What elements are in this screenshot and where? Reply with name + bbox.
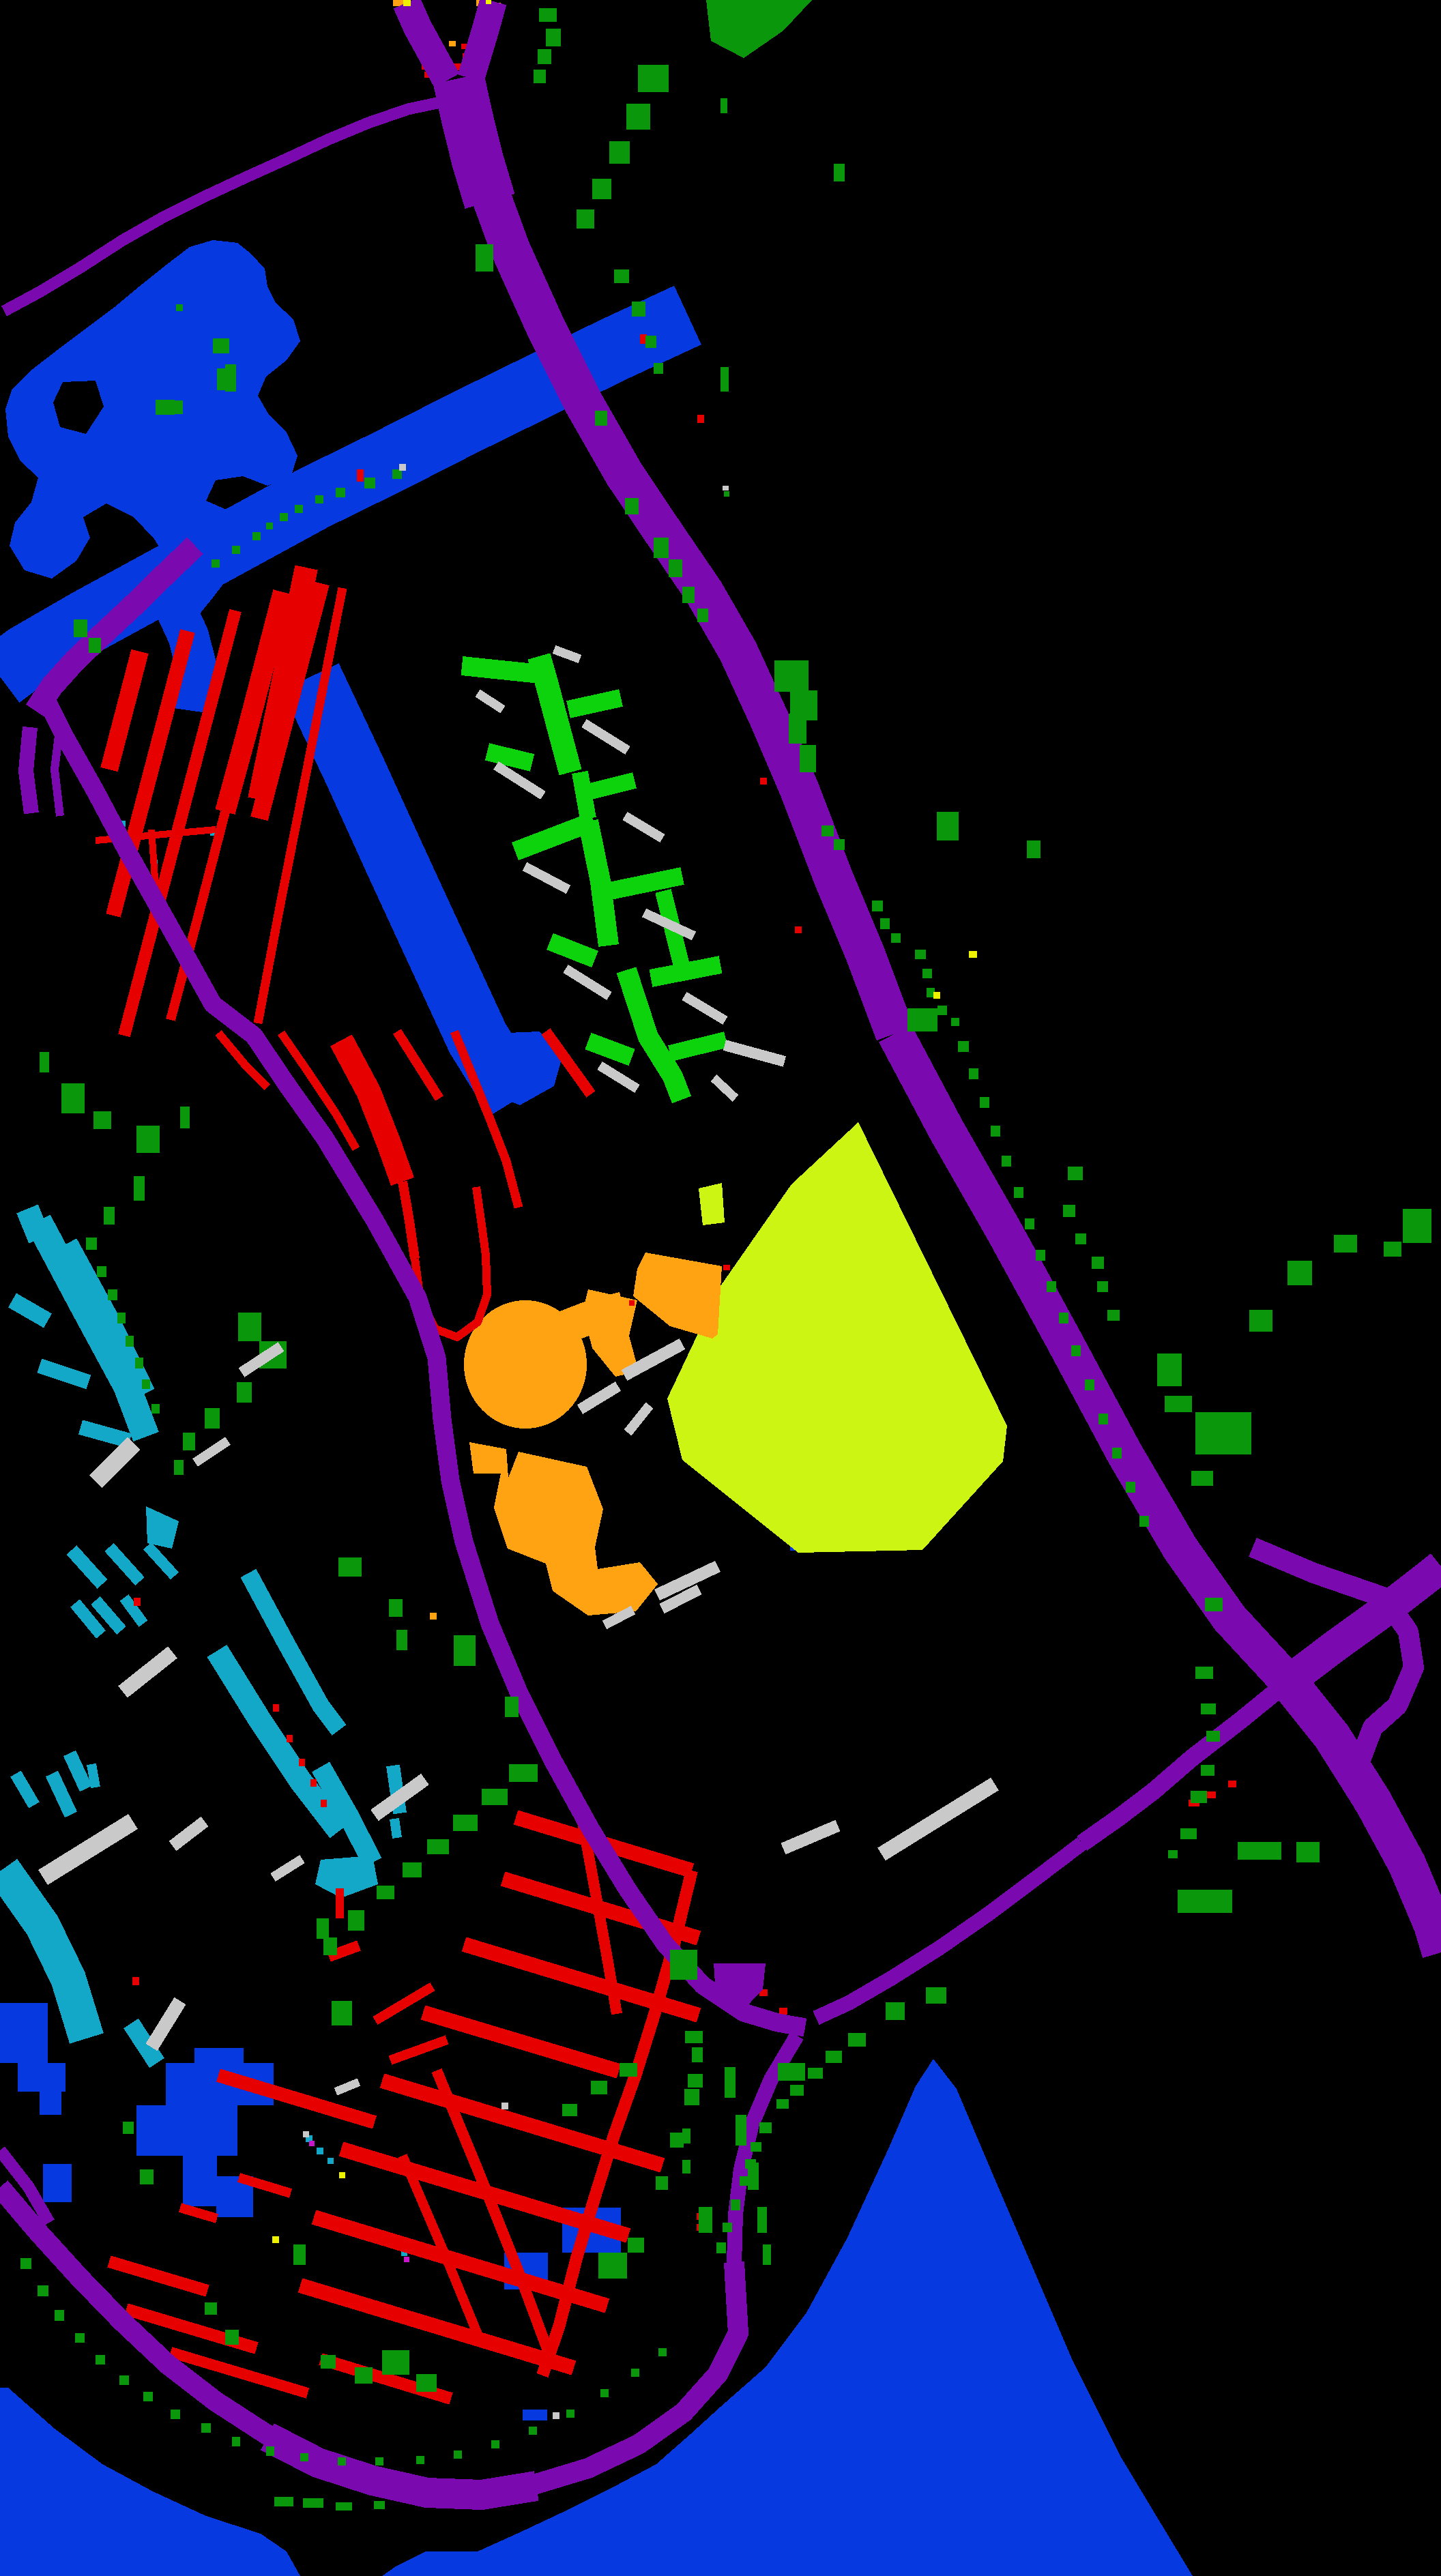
blue-blobs-bottom: [43, 2164, 72, 2202]
trees-dots: [682, 587, 695, 603]
trees-dots: [135, 1358, 143, 1368]
trees-dots: [592, 179, 611, 199]
trees-dots: [332, 2001, 352, 2025]
red-specks: [760, 778, 767, 785]
road-strip: [26, 727, 31, 813]
trees-dots: [682, 2160, 690, 2173]
trees-dots: [205, 2302, 217, 2315]
trees-dots: [1201, 1703, 1216, 1714]
trees-dots: [180, 1107, 190, 1128]
trees-dots: [751, 2142, 761, 2152]
blue-blobs-bottom: [183, 2156, 217, 2206]
trees-dots: [891, 933, 901, 943]
trees-dots: [670, 2133, 684, 2148]
trees-dots: [171, 2410, 180, 2419]
trees-dots: [1403, 1209, 1431, 1243]
trees-dots: [872, 901, 883, 911]
trees-dots: [315, 495, 323, 503]
trees-dots: [338, 2457, 346, 2465]
trees-dots: [614, 269, 629, 283]
red-specks: [310, 1779, 317, 1787]
trees-dots: [1002, 1156, 1011, 1167]
trees-dots: [654, 538, 669, 558]
trees-dots: [907, 1008, 937, 1031]
trees-dots: [778, 2063, 805, 2081]
red-specks: [273, 1704, 279, 1712]
trees-dots: [628, 2238, 644, 2253]
trees-dots: [1165, 1396, 1192, 1412]
trees-dots: [834, 164, 845, 181]
orange-dots: [449, 41, 456, 46]
blue-blobs-bottom: [18, 2063, 65, 2092]
cyan-specks: [327, 2158, 334, 2164]
trees-dots: [937, 812, 959, 840]
trees-dots: [566, 2410, 574, 2418]
trees-dots: [1059, 1313, 1068, 1323]
trees-dots: [392, 469, 402, 479]
trees-dots: [1195, 1667, 1213, 1679]
trees-dots: [1126, 1482, 1135, 1493]
trees-dots: [293, 2244, 306, 2265]
trees-dots: [609, 141, 630, 164]
trees-dots: [274, 2497, 293, 2506]
trees-dots: [75, 2333, 85, 2343]
cyan-specks: [317, 2148, 323, 2154]
trees-dots: [1384, 1242, 1401, 1257]
trees-dots: [505, 1697, 519, 1717]
trees-dots: [1201, 1765, 1214, 1776]
trees-dots: [670, 1950, 697, 1980]
trees-dots: [790, 2085, 804, 2096]
trees-dots: [669, 559, 682, 577]
trees-dots: [97, 1266, 106, 1277]
trees-dots: [336, 488, 345, 497]
trees-dots: [143, 2392, 153, 2401]
trees-dots: [529, 2427, 537, 2435]
trees-dots: [1180, 1828, 1197, 1839]
trees-dots: [685, 2031, 703, 2043]
trees-dots: [656, 2176, 668, 2190]
trees-dots: [1085, 1379, 1094, 1390]
trees-dots: [625, 498, 639, 514]
cyan-bar: [91, 1764, 96, 1787]
trees-dots: [591, 2081, 607, 2094]
trees-dots: [1075, 1233, 1086, 1244]
trees-dots: [562, 2104, 577, 2116]
trees-dots: [416, 2456, 424, 2464]
trees-dots: [620, 2063, 637, 2077]
trees-dots: [1191, 1791, 1207, 1803]
trees-dots: [317, 1918, 329, 1939]
yellow-specks: [272, 2236, 279, 2243]
trees-dots: [688, 2074, 703, 2088]
classification-map-page: [0, 0, 1441, 2576]
red-specks: [795, 926, 802, 933]
trees-dots: [1025, 1218, 1034, 1229]
trees-dots: [136, 1126, 160, 1153]
trees-dots: [96, 2355, 105, 2365]
trees-dots: [176, 304, 183, 311]
comb-branch: [487, 752, 532, 763]
trees-dots: [266, 2446, 274, 2456]
trees-dots: [980, 1097, 989, 1108]
trees-dots: [238, 1313, 261, 1341]
trees-dots: [201, 2423, 211, 2433]
trees-dots: [632, 302, 645, 317]
cyan-bar: [27, 1209, 40, 1239]
magenta-specks: [404, 2257, 409, 2262]
trees-dots: [800, 745, 816, 772]
trees-dots: [1092, 1257, 1104, 1269]
trees-dots: [382, 2350, 409, 2375]
trees-dots: [108, 1289, 117, 1300]
trees-dots: [937, 1006, 947, 1015]
trees-dots: [595, 411, 607, 426]
trees-dots: [126, 1336, 134, 1347]
trees-dots: [748, 2163, 759, 2190]
magenta-specks: [309, 2141, 315, 2146]
trees-dots: [1068, 1167, 1083, 1180]
trees-dots: [364, 478, 375, 488]
gray-specks: [723, 486, 729, 491]
trees-dots: [295, 505, 303, 513]
trees-dots: [692, 2047, 703, 2062]
trees-dots: [834, 839, 845, 850]
trees-dots: [723, 2223, 732, 2232]
trees-dots: [821, 825, 834, 836]
trees-dots: [205, 1408, 220, 1429]
trees-dots: [716, 2242, 726, 2253]
trees-dots: [338, 1557, 362, 1577]
trees-dots: [720, 98, 727, 113]
trees-dots: [724, 491, 729, 497]
comb-branch: [462, 666, 540, 674]
trees-dots: [355, 2367, 373, 2384]
trees-dots: [736, 2115, 746, 2146]
orange-dots: [430, 1613, 437, 1620]
trees-dots: [396, 1630, 407, 1650]
trees-dots: [951, 1018, 959, 1026]
gray-specks: [553, 2412, 559, 2419]
trees-dots: [1063, 1205, 1075, 1217]
trees-dots: [969, 1068, 978, 1079]
trees-dots: [759, 2122, 772, 2133]
blue-blobs-bottom: [136, 2105, 237, 2156]
gray-specks: [501, 2103, 508, 2109]
trees-dots: [645, 336, 656, 348]
trees-dots: [626, 104, 650, 130]
trees-dots: [1206, 1731, 1220, 1742]
trees-dots: [123, 2122, 134, 2134]
trees-dots: [848, 2033, 866, 2047]
trees-dots: [1238, 1842, 1281, 1860]
trees-dots: [808, 2068, 823, 2079]
trees-dots: [225, 2330, 239, 2345]
trees-dots: [1205, 1598, 1223, 1611]
trees-dots: [697, 609, 708, 622]
trees-dots: [217, 368, 229, 390]
trees-dots: [104, 1207, 115, 1225]
trees-dots: [1107, 1310, 1120, 1321]
trees-dots: [598, 2253, 627, 2279]
trees-dots: [280, 513, 288, 521]
trees-dots: [119, 2375, 129, 2385]
trees-dots: [534, 70, 546, 83]
trees-dots: [1249, 1310, 1272, 1332]
trees-dots: [886, 2002, 905, 2020]
red-specks: [321, 1800, 327, 1807]
trees-dots: [789, 714, 806, 744]
trees-dots: [740, 2176, 749, 2186]
trees-dots: [1195, 1412, 1251, 1454]
red-specks: [1228, 1781, 1236, 1787]
yellow-specks: [403, 0, 411, 6]
trees-dots: [991, 1126, 1000, 1137]
trees-dots: [1098, 1414, 1108, 1424]
trees-dots: [1014, 1187, 1023, 1198]
trees-dots: [1027, 840, 1040, 858]
trees-dots: [377, 1886, 394, 1899]
trees-dots: [915, 950, 926, 959]
trees-dots: [538, 49, 551, 64]
trees-dots: [638, 65, 669, 92]
trees-dots: [374, 2501, 385, 2509]
yellow-specks: [339, 2172, 345, 2178]
trees-dots: [725, 2067, 736, 2098]
yellow-specks: [969, 951, 977, 958]
trees-dots: [491, 2440, 499, 2448]
trees-dots: [348, 1910, 364, 1931]
trees-dots: [213, 338, 229, 353]
trees-dots: [1334, 1235, 1357, 1253]
trees-dots: [38, 2285, 48, 2296]
red-specks: [629, 1300, 635, 1306]
trees-dots: [476, 244, 493, 272]
trees-dots: [757, 2207, 767, 2233]
trees-dots: [303, 2498, 323, 2508]
trees-dots: [55, 2310, 64, 2321]
blue-blobs-bottom: [0, 2003, 48, 2063]
trees-dots: [774, 660, 809, 692]
trees-dots: [1139, 1516, 1149, 1527]
trees-dots: [654, 363, 663, 374]
trees-dots: [174, 1460, 184, 1475]
trees-dots: [482, 1789, 508, 1805]
trees-dots: [266, 523, 273, 529]
trees-dots: [134, 1176, 145, 1201]
trees-dots: [336, 2502, 352, 2511]
trees-dots: [731, 2199, 740, 2210]
trees-dots: [40, 1052, 49, 1072]
trees-dots: [20, 2258, 31, 2269]
trees-dots: [684, 2089, 699, 2105]
red-specks: [134, 1598, 141, 1606]
trees-dots: [1071, 1345, 1081, 1356]
trees-dots: [416, 2374, 437, 2392]
red-specks: [357, 469, 364, 482]
trees-dots: [631, 2369, 639, 2377]
trees-dots: [826, 2051, 842, 2063]
trees-dots: [1157, 1353, 1182, 1386]
trees-dots: [89, 638, 101, 653]
trees-dots: [142, 1379, 150, 1389]
trees-dots: [454, 2450, 462, 2459]
gray-specks: [399, 464, 406, 471]
trees-dots: [403, 1862, 422, 1877]
red-specks: [779, 2008, 787, 2015]
trees-dots: [389, 1599, 403, 1617]
comb-branch: [568, 698, 621, 709]
trees-dots: [1287, 1261, 1312, 1285]
trees-dots: [212, 559, 220, 568]
trees-dots: [454, 1635, 476, 1666]
trees-dots: [1296, 1842, 1320, 1862]
trees-dots: [427, 1839, 449, 1854]
trees-dots: [232, 546, 240, 554]
trees-dots: [1097, 1281, 1108, 1292]
trees-dots: [699, 2207, 712, 2233]
red-specks: [1206, 1791, 1216, 1798]
trees-dots: [156, 400, 175, 415]
trees-dots: [509, 1764, 538, 1782]
yellow-green-sliver: [699, 1183, 725, 1225]
trees-dots: [321, 2355, 336, 2369]
blue-blobs-bottom: [194, 2048, 244, 2064]
trees-dots: [1112, 1448, 1122, 1459]
yellow-specks: [486, 0, 491, 4]
trees-dots: [720, 367, 729, 392]
trees-dots: [252, 532, 261, 540]
red-specks: [723, 1265, 730, 1270]
trees-dots: [61, 1083, 85, 1113]
red-specks: [132, 1977, 139, 1985]
trees-dots: [1047, 1281, 1056, 1292]
cyan-vbar: [394, 1819, 397, 1838]
trees-dots: [1191, 1471, 1213, 1486]
trees-dots: [577, 209, 594, 229]
trees-dots: [151, 1404, 160, 1414]
blue-blobs-bottom: [523, 2410, 547, 2420]
trees-dots: [1178, 1890, 1232, 1913]
trees-dots: [300, 2453, 308, 2461]
ground-truth-map: [0, 0, 1441, 2576]
trees-dots: [323, 1937, 337, 1955]
trees-dots: [539, 8, 557, 22]
trees-dots: [375, 2457, 383, 2465]
gray-specks: [303, 2131, 309, 2137]
red-specks: [336, 1888, 344, 1918]
trees-dots: [658, 2348, 667, 2356]
trees-dots: [600, 2389, 609, 2397]
trees-dots: [1036, 1250, 1045, 1261]
red-specks: [697, 415, 704, 423]
trees-dots: [880, 918, 890, 929]
trees-dots: [237, 1382, 252, 1403]
trees-dots: [74, 619, 87, 637]
trees-dots: [763, 2244, 771, 2265]
yellow-specks: [933, 992, 940, 999]
trees-dots: [453, 1815, 478, 1831]
trees-dots: [183, 1433, 195, 1450]
trees-dots: [922, 969, 932, 978]
trees-dots: [117, 1313, 126, 1323]
trees-dots: [776, 2099, 789, 2109]
red-specks: [287, 1735, 293, 1742]
trees-dots: [958, 1041, 969, 1052]
trees-dots: [1168, 1850, 1178, 1858]
trees-dots: [926, 1987, 946, 2004]
blue-blobs-bottom: [40, 2092, 61, 2115]
trees-dots: [546, 29, 561, 46]
trees-dots: [140, 2169, 154, 2184]
red-specks: [299, 1759, 305, 1766]
trees-dots: [232, 2437, 240, 2446]
trees-dots: [86, 1238, 97, 1250]
trees-dots: [93, 1111, 111, 1129]
